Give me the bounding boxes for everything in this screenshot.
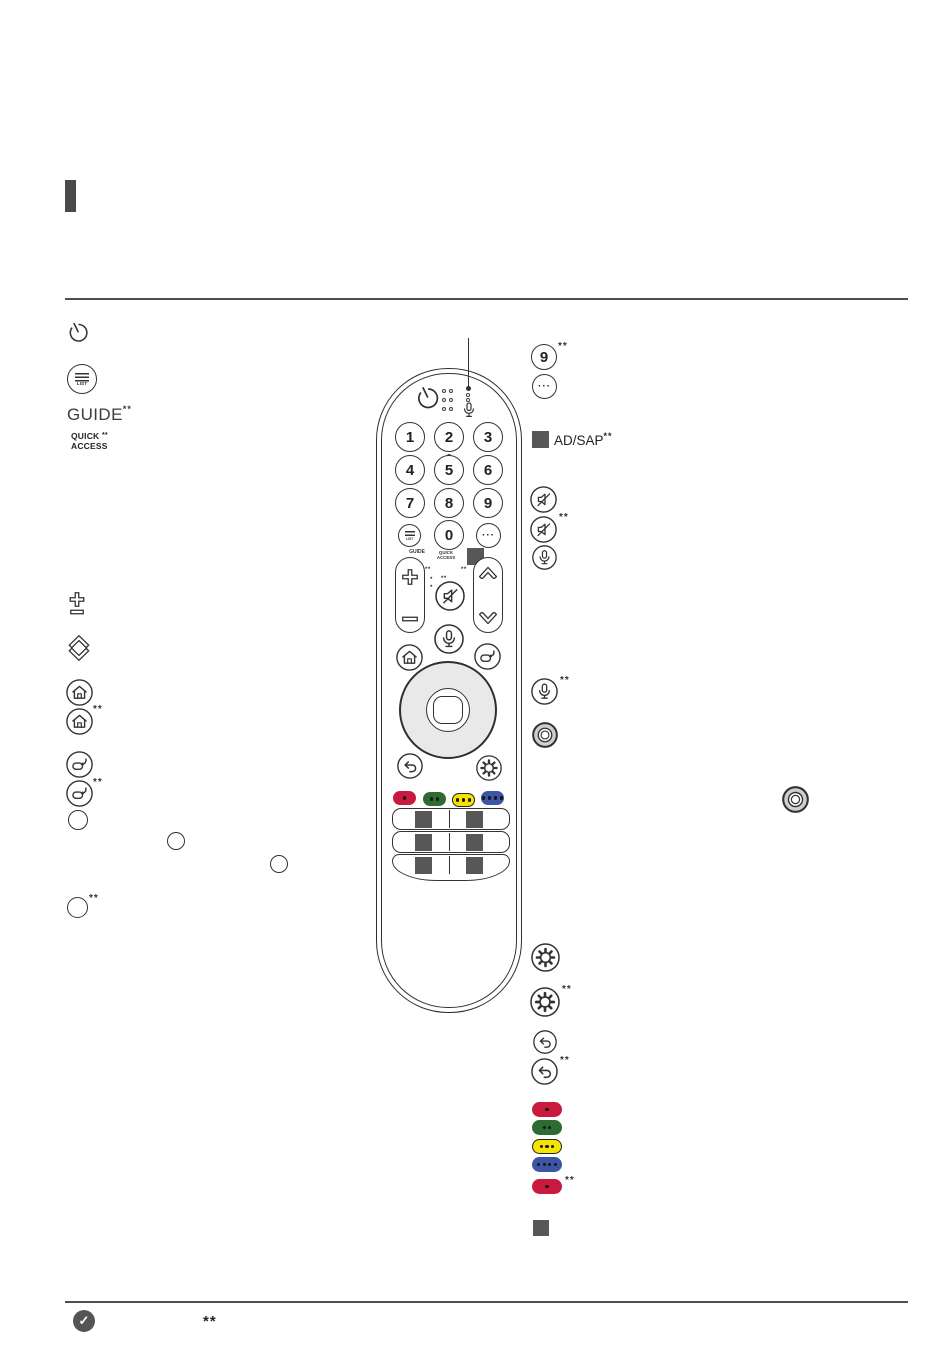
digit-button-7: 7 xyxy=(395,488,425,518)
footnote-marker: ** xyxy=(425,567,431,573)
mute-icon xyxy=(530,486,557,513)
footer-note-marker: ** xyxy=(203,1313,217,1330)
remote-settings-button xyxy=(476,755,502,781)
masked-button-square xyxy=(533,1220,549,1236)
remote-mic-button xyxy=(434,624,464,654)
masked-app-logo xyxy=(415,857,432,874)
remote-more-actions-button: ··· xyxy=(476,523,501,548)
footnote-marker: ** xyxy=(604,431,613,441)
power-icon xyxy=(62,316,95,349)
digit-button-8: 8 xyxy=(434,488,464,518)
footnote-marker: ** xyxy=(93,778,103,788)
note-check-icon: ✓ xyxy=(73,1310,95,1332)
back-icon xyxy=(531,1058,558,1085)
app-button-row xyxy=(392,831,510,853)
footnote-marker: ** xyxy=(565,1176,575,1186)
remote-mute-button xyxy=(435,581,465,611)
digit-9-icon: 9 xyxy=(531,344,557,370)
mic-hole-dot xyxy=(466,386,471,391)
footnote-marker: ** xyxy=(123,404,132,414)
masked-app-logo xyxy=(466,857,483,874)
footnote-marker: ** xyxy=(558,342,568,352)
callout-pointer-line xyxy=(468,338,470,387)
channel-down-glyph xyxy=(479,612,497,624)
list-icon-label: LIST xyxy=(77,382,87,387)
app-button-row xyxy=(392,854,510,881)
footnote-marker: ** xyxy=(102,432,108,439)
settings-gear-icon xyxy=(531,943,560,972)
footnote-marker: ** xyxy=(89,894,99,904)
footnote-marker: ** xyxy=(560,676,570,686)
red-button xyxy=(393,791,416,805)
top-rule xyxy=(65,298,908,300)
nav-wheel-ok-button xyxy=(433,696,463,724)
remote-back-button xyxy=(397,753,423,779)
footnote-marker: * xyxy=(430,577,433,583)
footnote-dot xyxy=(449,407,453,411)
app-row-divider xyxy=(449,810,450,828)
volume-rocker-icon xyxy=(65,591,89,618)
mic-hole-dot xyxy=(466,393,470,397)
reference-circle xyxy=(167,832,185,850)
adsap-label: AD/SAP** xyxy=(554,431,613,448)
reference-circle xyxy=(270,855,288,873)
digit-button-1: 1 xyxy=(395,422,425,452)
masked-app-logo xyxy=(415,811,432,828)
footnote-dot xyxy=(449,389,453,393)
digit-button-3: 3 xyxy=(473,422,503,452)
volume-up-glyph xyxy=(402,569,418,585)
more-actions-icon: ··· xyxy=(532,374,557,399)
volume-down-glyph xyxy=(402,615,418,623)
digit-button-6: 6 xyxy=(473,455,503,485)
section-accent-bar xyxy=(65,180,76,212)
footnote-marker: ** xyxy=(559,513,569,523)
footnote-dot xyxy=(449,398,453,402)
remote-home-button xyxy=(396,644,423,671)
digit-button-4: 4 xyxy=(395,455,425,485)
footnote-marker: ** xyxy=(562,985,572,995)
channel-up-glyph xyxy=(479,567,497,579)
remote-guide-label: GUIDE xyxy=(403,549,431,555)
footnote-dot xyxy=(442,407,446,411)
mic-icon xyxy=(531,678,558,705)
green-button-icon xyxy=(532,1120,562,1135)
guide-label: GUIDE** xyxy=(67,404,132,425)
digit-button-5: 5 xyxy=(434,455,464,485)
blue-button-icon xyxy=(532,1157,562,1172)
app-row-divider xyxy=(449,856,450,874)
mute-icon xyxy=(530,516,557,543)
quick-access-label: QUICK ** ACCESS xyxy=(71,431,108,451)
mic-hole-dot xyxy=(466,398,470,402)
channel-rocker-icon xyxy=(66,633,92,663)
yellow-button xyxy=(452,793,475,807)
mic-icon xyxy=(532,545,557,570)
footnote-marker: ** xyxy=(560,1056,570,1066)
back-icon xyxy=(533,1030,557,1054)
home-icon xyxy=(66,708,93,735)
digit-button-9: 9 xyxy=(473,488,503,518)
wheel-icon xyxy=(782,786,809,813)
app-row-divider xyxy=(449,833,450,851)
settings-gear-icon xyxy=(530,987,560,1017)
remote-list-button: LIST xyxy=(398,524,421,547)
footnote-marker: ** xyxy=(461,567,467,573)
input-icon xyxy=(66,780,93,807)
bottom-rule xyxy=(65,1301,908,1303)
reference-circle xyxy=(67,897,88,918)
app-button-row xyxy=(392,808,510,830)
digit-button-0: 0 xyxy=(434,520,464,550)
list-icon: LIST xyxy=(67,364,97,394)
blue-button xyxy=(481,791,504,805)
digit-button-2: 2 xyxy=(434,422,464,452)
masked-button-square xyxy=(532,431,549,448)
green-button xyxy=(423,792,446,806)
home-icon xyxy=(66,679,93,706)
manual-page: LIST GUIDE** QUICK ** ACCESS ** ** ** 1 … xyxy=(0,0,950,1353)
masked-app-logo xyxy=(415,834,432,851)
footnote-marker: * xyxy=(430,585,433,591)
input-icon xyxy=(66,751,93,778)
remote-input-button xyxy=(474,643,501,670)
red-button-icon xyxy=(532,1179,562,1194)
yellow-button-icon xyxy=(532,1139,562,1154)
masked-app-logo xyxy=(466,834,483,851)
red-button-icon xyxy=(532,1102,562,1117)
remote-mic-hole-icon xyxy=(462,402,476,420)
footnote-dot xyxy=(442,398,446,402)
wheel-icon xyxy=(532,722,558,748)
reference-circle xyxy=(68,810,88,830)
remote-quick-access-label: QUICK ACCESS xyxy=(433,550,459,561)
footnote-marker: ** xyxy=(93,705,103,715)
masked-app-logo xyxy=(466,811,483,828)
footnote-dot xyxy=(442,389,446,393)
